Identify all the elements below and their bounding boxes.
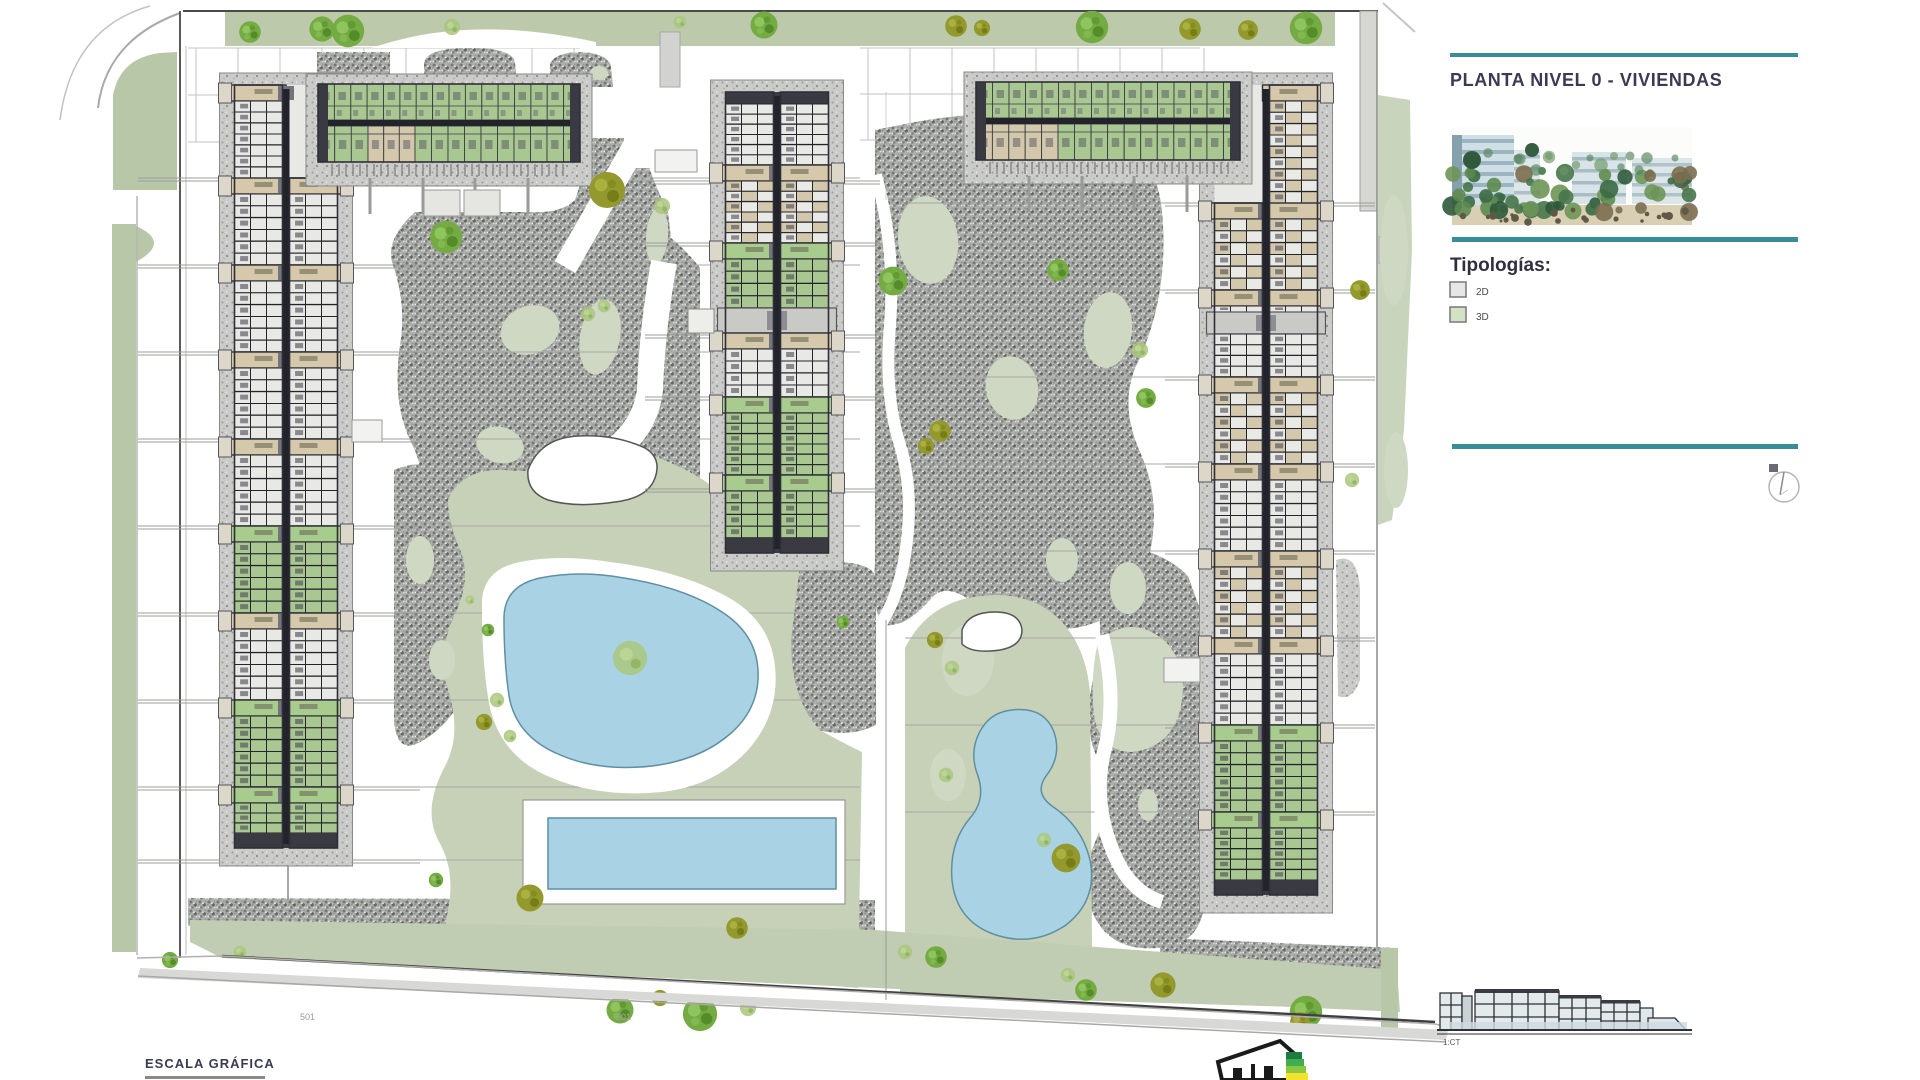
svg-text:ESCALA GRÁFICA: ESCALA GRÁFICA (145, 1056, 275, 1071)
svg-text:Tipologías:: Tipologías: (1450, 255, 1551, 276)
svg-text:3D: 3D (1476, 312, 1489, 323)
svg-text:PLANTA NIVEL 0 - VIVIENDAS: PLANTA NIVEL 0 - VIVIENDAS (1450, 70, 1722, 90)
svg-text:501: 501 (616, 1012, 631, 1022)
svg-text:501: 501 (300, 1012, 315, 1022)
svg-text:2D: 2D (1476, 287, 1489, 298)
svg-text:1:CT: 1:CT (1443, 1038, 1460, 1047)
